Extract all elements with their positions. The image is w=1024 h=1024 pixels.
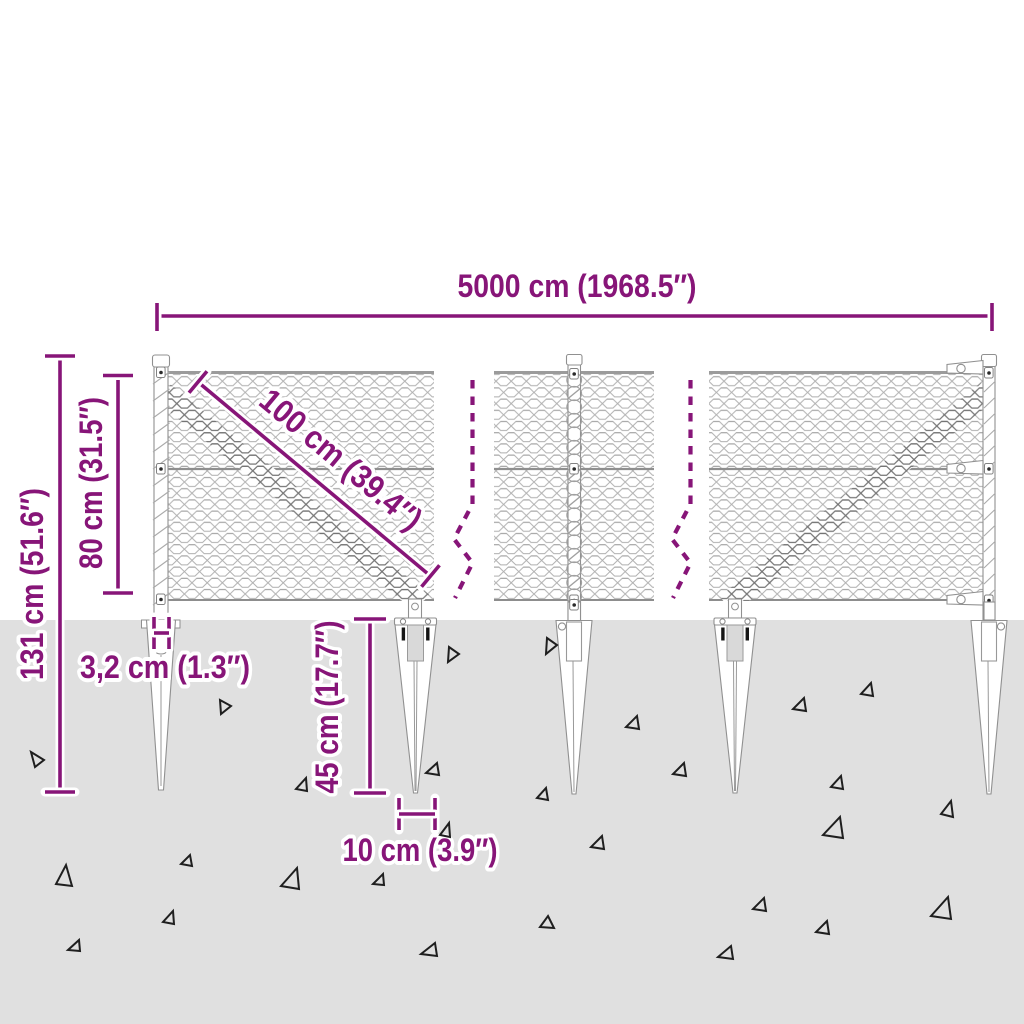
svg-text:131 cm (51.6″): 131 cm (51.6″): [14, 488, 50, 680]
svg-text:3,2 cm (1.3″): 3,2 cm (1.3″): [80, 649, 250, 685]
svg-text:80 cm (31.5″): 80 cm (31.5″): [73, 397, 109, 569]
svg-text:5000 cm (1968.5″): 5000 cm (1968.5″): [458, 268, 697, 304]
svg-text:45 cm (17.7″): 45 cm (17.7″): [309, 621, 345, 794]
svg-text:10 cm (3.9″): 10 cm (3.9″): [343, 832, 498, 868]
